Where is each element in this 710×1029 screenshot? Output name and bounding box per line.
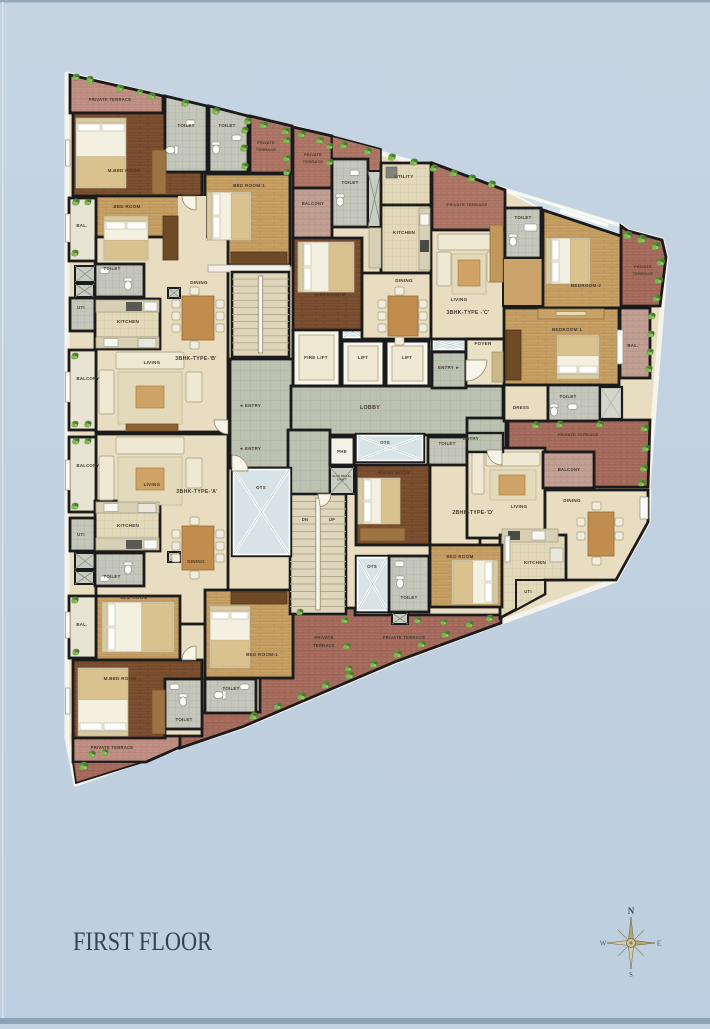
svg-text:PRIVATE: PRIVATE [257, 140, 275, 145]
svg-text:TOILET: TOILET [175, 717, 192, 722]
svg-text:PRIVATE TERRACE: PRIVATE TERRACE [89, 97, 132, 102]
svg-text:TOILET: TOILET [222, 686, 239, 691]
svg-text:M.BED ROOM: M.BED ROOM [378, 470, 411, 475]
svg-text:◄ ENTRY: ◄ ENTRY [239, 403, 261, 408]
svg-text:PRIVATE TERRACE: PRIVATE TERRACE [91, 745, 134, 750]
svg-text:◄ ENTRY: ◄ ENTRY [239, 446, 261, 451]
svg-text:PHE: PHE [337, 449, 347, 454]
svg-text:TOILET: TOILET [400, 595, 417, 600]
svg-text:3BHK-TYPE-'B': 3BHK-TYPE-'B' [175, 356, 216, 362]
svg-text:TERRACE: TERRACE [256, 147, 277, 152]
svg-text:DINING: DINING [190, 280, 208, 285]
svg-text:E: E [657, 940, 661, 948]
svg-text:BALCONY: BALCONY [558, 467, 580, 472]
svg-text:BED ROOM: BED ROOM [113, 204, 140, 209]
svg-text:ENTRY: ENTRY [463, 436, 479, 441]
svg-text:OTS: OTS [256, 485, 266, 490]
svg-text:TOILET: TOILET [177, 123, 194, 128]
svg-text:LIVING: LIVING [511, 504, 528, 509]
svg-text:SHAFT: SHAFT [337, 478, 347, 482]
svg-text:DRESS: DRESS [513, 405, 529, 410]
svg-text:N: N [628, 906, 635, 916]
svg-text:OTS: OTS [380, 440, 390, 445]
svg-text:BED ROOM: BED ROOM [446, 554, 473, 559]
svg-text:DINING: DINING [187, 559, 205, 564]
svg-text:TOILET: TOILET [341, 180, 358, 185]
svg-text:PRIVATE: PRIVATE [634, 264, 652, 269]
svg-text:PRIVATE TERRACE: PRIVATE TERRACE [558, 432, 599, 437]
svg-text:LIFT: LIFT [358, 355, 369, 360]
svg-text:BALCONY: BALCONY [302, 201, 324, 206]
svg-text:KITCHEN: KITCHEN [117, 523, 140, 528]
svg-text:FIRE LIFT: FIRE LIFT [304, 355, 328, 360]
svg-text:UTI: UTI [77, 305, 85, 310]
svg-text:TOILET: TOILET [103, 266, 120, 271]
svg-text:BED ROOM-1: BED ROOM-1 [233, 183, 265, 188]
svg-text:UTI: UTI [524, 589, 532, 594]
svg-text:PRIVATE TERRACE: PRIVATE TERRACE [447, 202, 488, 207]
svg-text:BALCONY: BALCONY [77, 463, 100, 468]
svg-text:UTI: UTI [77, 532, 85, 537]
svg-text:KITCHEN: KITCHEN [117, 319, 140, 324]
svg-text:BAL.: BAL. [76, 622, 87, 627]
svg-text:KITCHEN: KITCHEN [393, 230, 416, 235]
svg-text:FIRST FLOOR: FIRST FLOOR [73, 927, 213, 956]
svg-text:BED ROOM-1: BED ROOM-1 [246, 652, 278, 657]
svg-text:TOILET: TOILET [218, 123, 235, 128]
svg-text:M.BED ROOM: M.BED ROOM [108, 168, 141, 173]
svg-text:FOYER: FOYER [474, 341, 492, 346]
svg-text:BED ROOM: BED ROOM [120, 595, 147, 600]
svg-text:OTS: OTS [367, 564, 377, 569]
svg-text:TERRACE: TERRACE [303, 159, 324, 164]
svg-text:UTILITY: UTILITY [394, 174, 413, 179]
svg-text:LOBBY: LOBBY [360, 405, 380, 411]
svg-text:M.BEDROOM: M.BEDROOM [314, 292, 345, 297]
svg-text:TOILET: TOILET [559, 394, 576, 399]
svg-text:UP: UP [329, 517, 335, 522]
svg-text:BEDROOM-2: BEDROOM-2 [571, 283, 602, 288]
svg-text:TERRACE: TERRACE [633, 271, 654, 276]
svg-text:LIVING: LIVING [144, 482, 161, 487]
svg-text:LIVING: LIVING [451, 297, 468, 302]
svg-text:DINING: DINING [395, 278, 413, 283]
svg-text:BAL.: BAL. [76, 223, 87, 228]
svg-text:3BHK-TYPE -'C': 3BHK-TYPE -'C' [446, 310, 489, 316]
svg-text:ENTRY ►: ENTRY ► [438, 365, 460, 370]
svg-text:LIVING: LIVING [144, 360, 161, 365]
svg-text:TOILET: TOILET [438, 441, 455, 446]
svg-text:3BHK-TYPE-'A': 3BHK-TYPE-'A' [176, 489, 217, 495]
svg-text:LIFT: LIFT [402, 355, 413, 360]
svg-text:TOILET: TOILET [103, 574, 120, 579]
svg-text:W: W [600, 940, 607, 948]
svg-text:2BHK-TYPE-'D': 2BHK-TYPE-'D' [452, 510, 493, 516]
svg-text:PRIVATE TERRACE: PRIVATE TERRACE [383, 635, 426, 640]
svg-text:BALCONY: BALCONY [77, 376, 100, 381]
svg-text:DINING: DINING [563, 498, 581, 503]
svg-text:TERRACE: TERRACE [313, 643, 335, 648]
svg-text:TOILET: TOILET [514, 215, 531, 220]
svg-text:BEDROOM 1: BEDROOM 1 [552, 327, 582, 332]
svg-text:ELECTRICAL: ELECTRICAL [333, 474, 352, 478]
svg-text:KITCHEN: KITCHEN [524, 560, 547, 565]
svg-text:S: S [629, 971, 633, 979]
svg-text:BAL.: BAL. [627, 343, 638, 348]
svg-text:PRIVATE: PRIVATE [314, 635, 333, 640]
svg-text:PRIVATE: PRIVATE [304, 152, 322, 157]
svg-text:DN: DN [302, 517, 309, 522]
svg-text:M.BED ROOM: M.BED ROOM [104, 676, 137, 681]
